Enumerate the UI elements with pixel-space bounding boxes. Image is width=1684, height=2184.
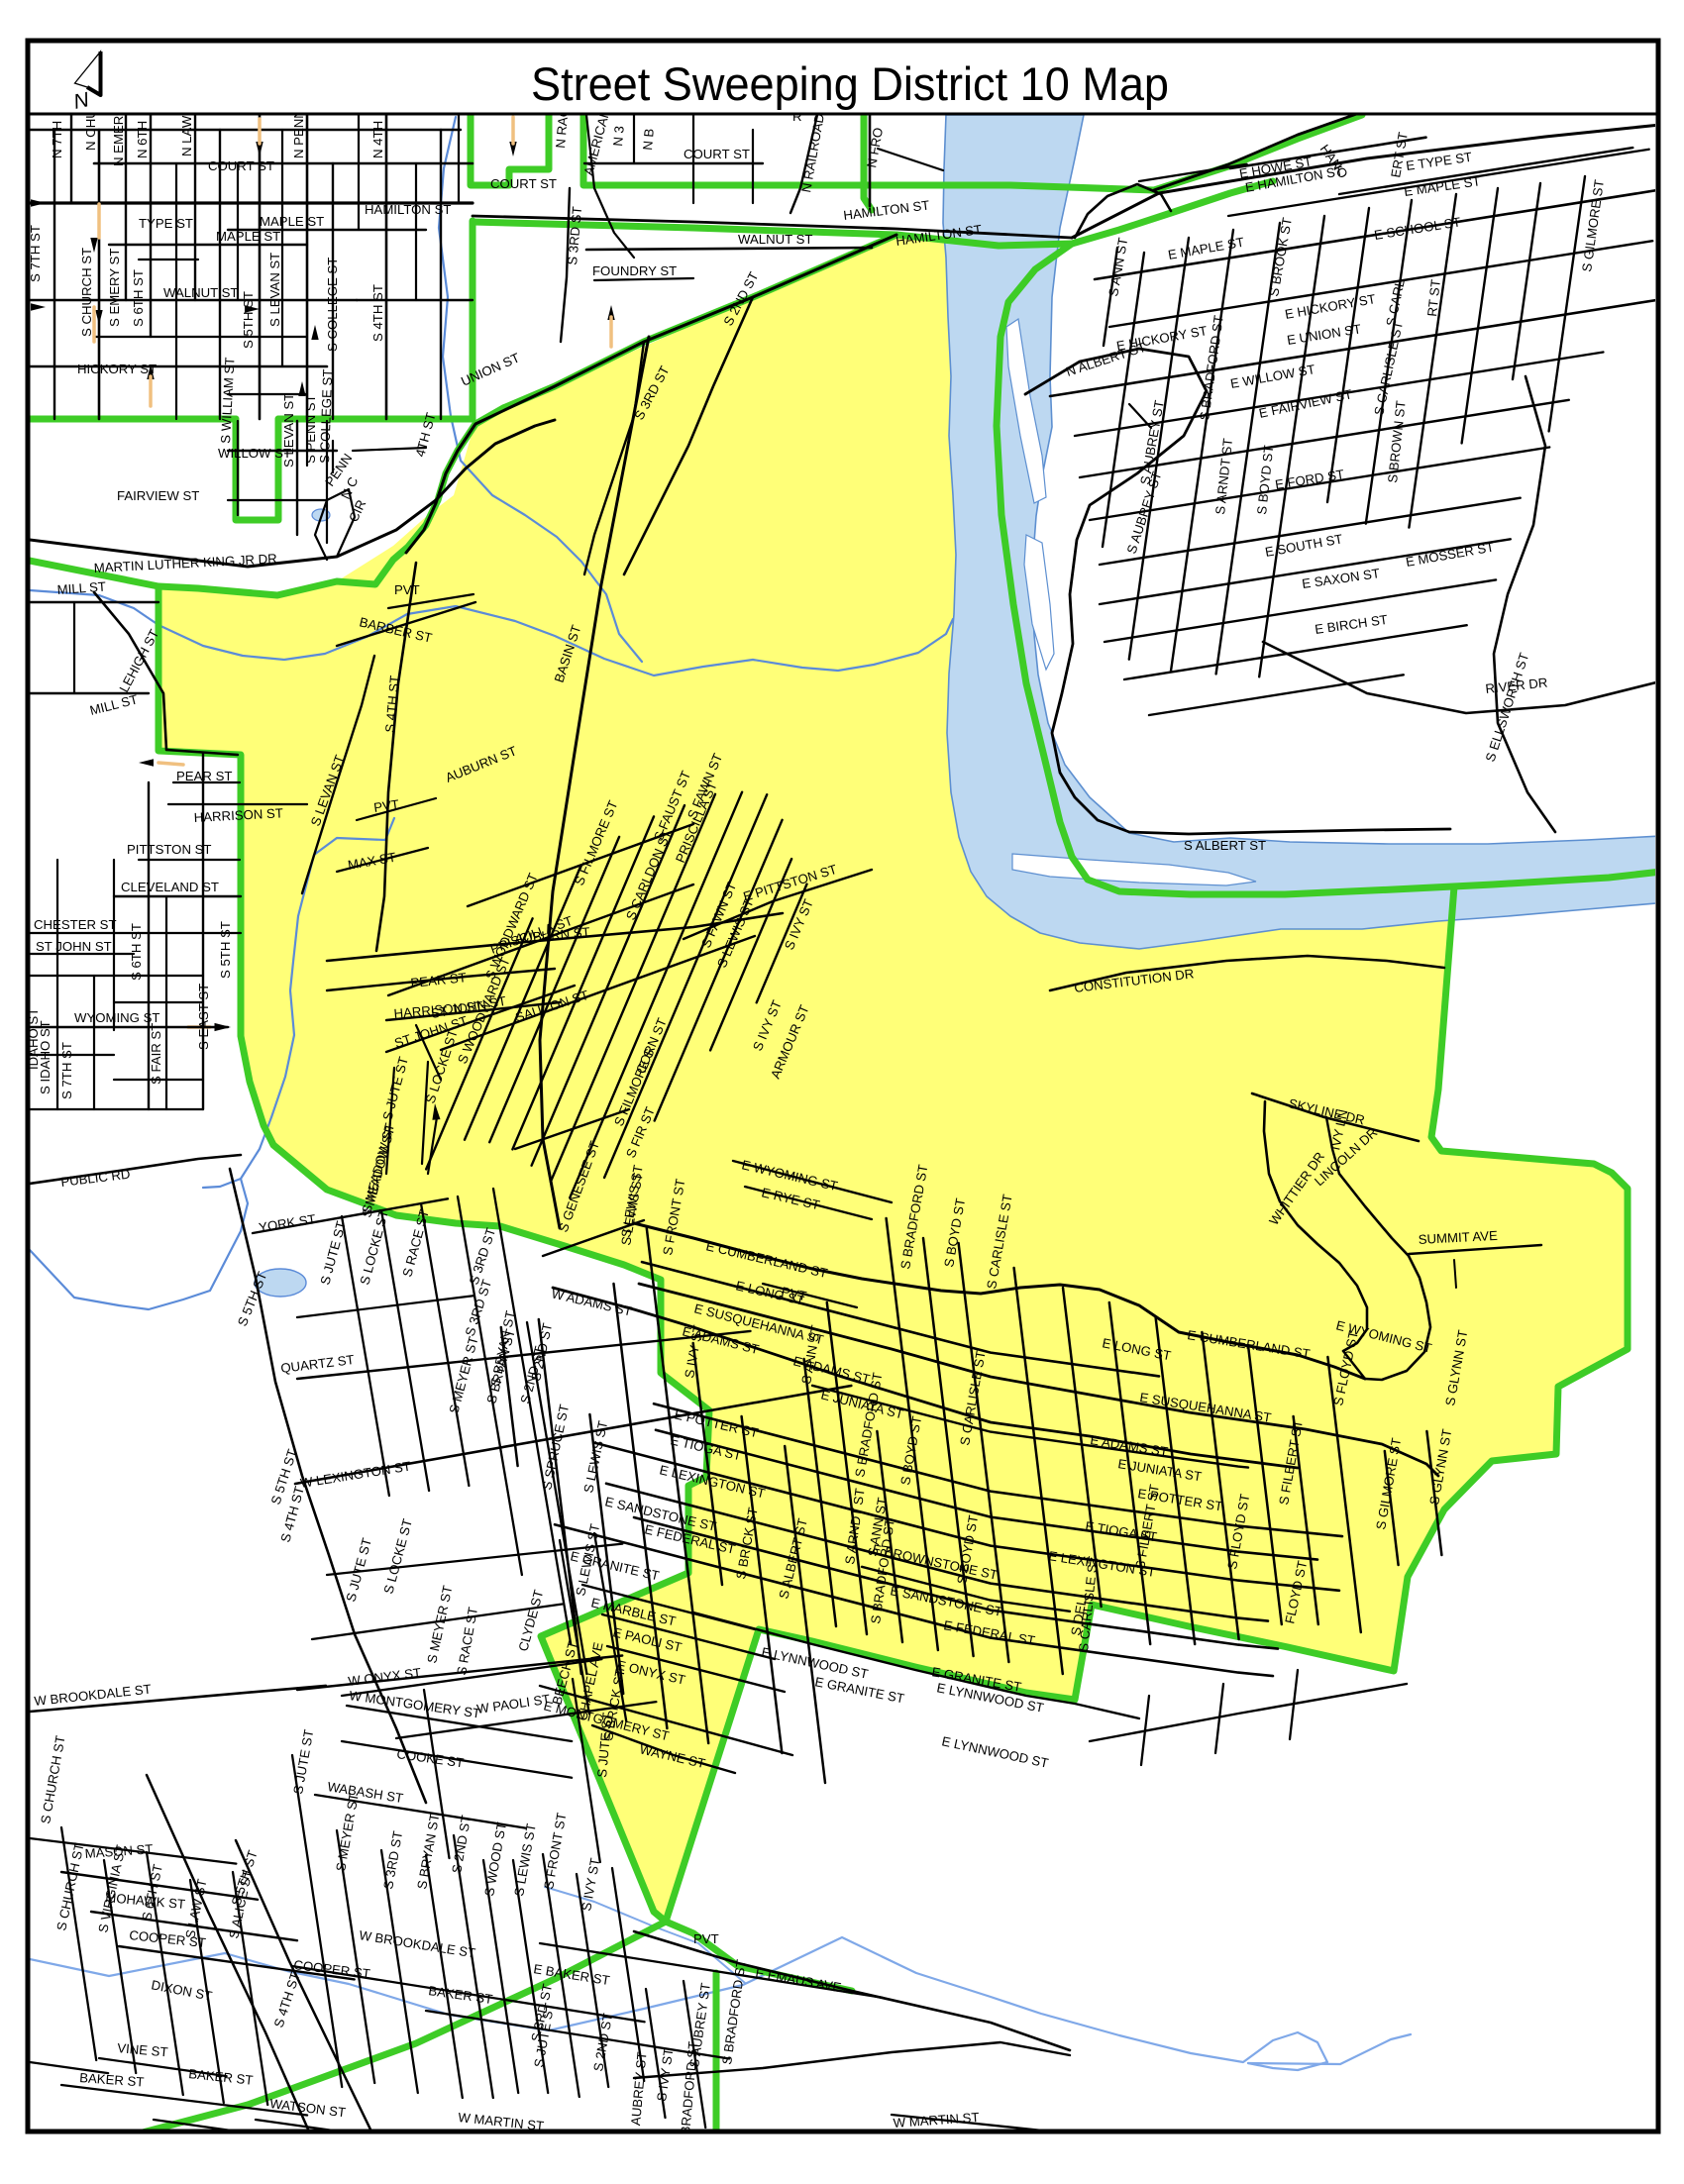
svg-text:MAPLE ST: MAPLE ST	[216, 229, 280, 244]
svg-text:PITTSTON ST: PITTSTON ST	[127, 842, 211, 857]
svg-text:S EAST ST: S EAST ST	[196, 984, 211, 1050]
svg-text:S ALBERT ST: S ALBERT ST	[1184, 838, 1266, 853]
svg-text:S 5TH ST: S 5TH ST	[218, 921, 233, 979]
svg-text:TYPE ST: TYPE ST	[139, 216, 193, 231]
svg-text:S FAIR ST: S FAIR ST	[149, 1023, 163, 1085]
svg-text:S 6TH ST: S 6TH ST	[131, 269, 146, 327]
svg-text:Street Sweeping District 10 Ma: Street Sweeping District 10 Map	[531, 57, 1169, 110]
svg-text:N 6TH: N 6TH	[135, 121, 150, 158]
svg-text:CLEVELAND ST: CLEVELAND ST	[121, 880, 219, 894]
svg-text:S COLLEGE ST: S COLLEGE ST	[325, 258, 340, 352]
svg-text:PVT: PVT	[693, 1931, 719, 1946]
svg-text:S PENN ST: S PENN ST	[303, 394, 318, 464]
svg-text:HAMILTON ST: HAMILTON ST	[365, 202, 451, 217]
svg-text:N LAW: N LAW	[179, 115, 194, 156]
svg-text:S CHURCH ST: S CHURCH ST	[79, 248, 94, 337]
svg-text:N EMER: N EMER	[111, 116, 126, 166]
svg-text:HICKORY ST: HICKORY ST	[77, 362, 157, 376]
svg-text:S 6TH ST: S 6TH ST	[129, 923, 144, 981]
svg-text:COURT ST: COURT ST	[208, 158, 274, 173]
svg-text:FAIRVIEW ST: FAIRVIEW ST	[117, 488, 199, 503]
svg-text:S 7TH ST: S 7TH ST	[59, 1042, 74, 1099]
svg-text:CHESTER ST: CHESTER ST	[34, 917, 117, 932]
svg-text:FOUNDRY ST: FOUNDRY ST	[592, 263, 677, 278]
svg-text:MAPLE ST: MAPLE ST	[260, 214, 324, 229]
svg-text:WYOMING ST: WYOMING ST	[74, 1010, 159, 1025]
svg-text:COURT ST: COURT ST	[490, 176, 557, 191]
svg-text:WALNUT ST: WALNUT ST	[738, 232, 812, 247]
svg-text:N 3: N 3	[610, 126, 627, 148]
svg-text:PVT: PVT	[394, 582, 420, 597]
svg-text:S 5TH ST: S 5TH ST	[241, 291, 256, 349]
svg-text:ST JOHN ST: ST JOHN ST	[36, 939, 112, 954]
svg-text:S LEVAN ST: S LEVAN ST	[267, 253, 282, 327]
svg-text:N B: N B	[640, 128, 657, 151]
svg-text:COURT ST: COURT ST	[684, 147, 750, 161]
svg-text:N 4TH: N 4TH	[370, 121, 385, 158]
svg-text:S EMERY ST: S EMERY ST	[107, 249, 122, 327]
svg-text:N 7TH: N 7TH	[50, 121, 64, 158]
svg-text:WALNUT ST: WALNUT ST	[163, 285, 238, 300]
svg-text:S 4TH ST: S 4TH ST	[370, 284, 385, 342]
svg-text:PEAR ST: PEAR ST	[176, 769, 232, 783]
svg-text:WILLOW ST: WILLOW ST	[218, 446, 291, 461]
